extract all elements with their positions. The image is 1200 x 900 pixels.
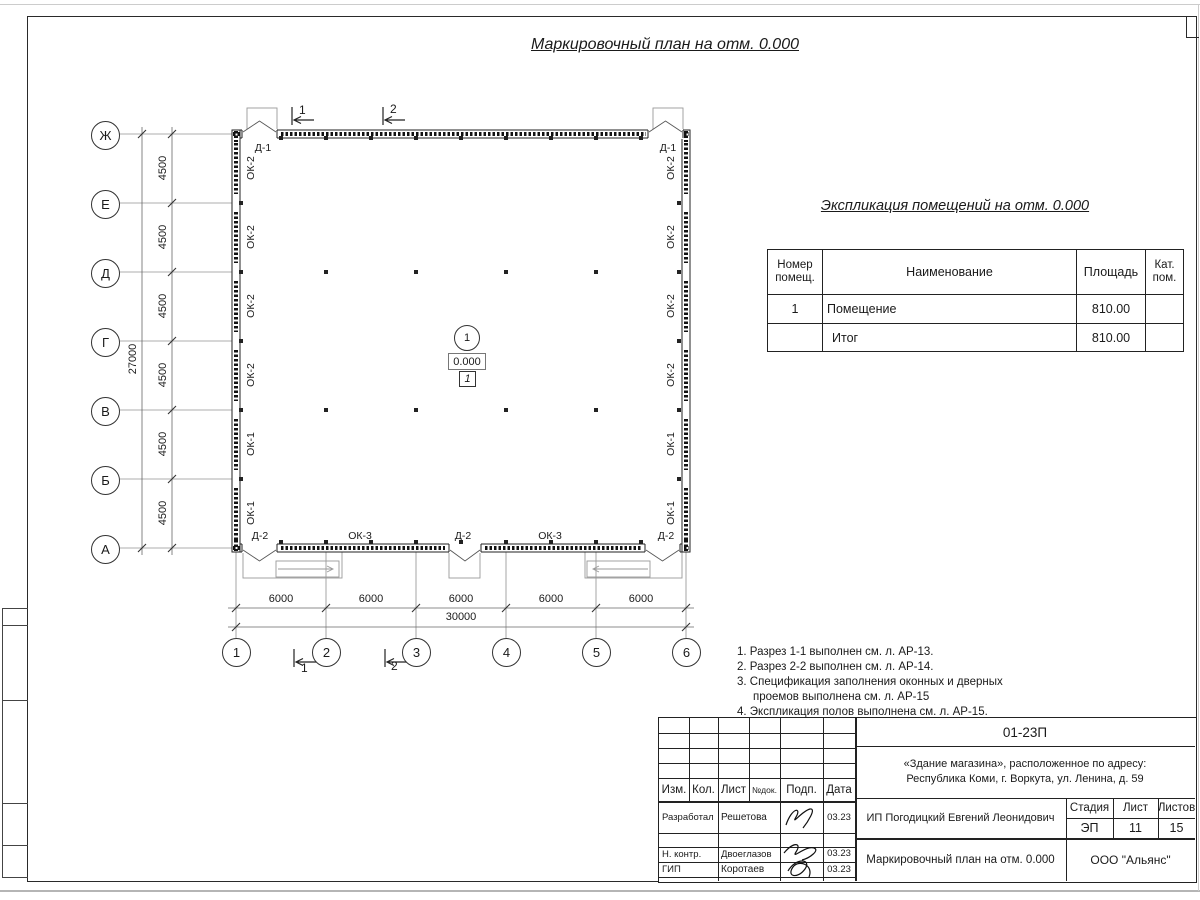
header-name: Наименование xyxy=(823,250,1077,295)
window-mark: ОК-3 xyxy=(338,530,382,542)
signature-stroke xyxy=(786,809,812,828)
header-area: Площадь xyxy=(1077,250,1146,295)
stamp-doc-number: 01-23П xyxy=(855,718,1195,746)
axis-bubble-col: 5 xyxy=(582,638,611,667)
axis-bubble-row: А xyxy=(91,535,120,564)
axis-bubble-col: 6 xyxy=(672,638,701,667)
note-item: 3. Спецификация заполнения оконных и две… xyxy=(737,675,1022,705)
stamp-line xyxy=(659,877,855,878)
stamp-stage-value: ЭП xyxy=(1066,818,1113,838)
axis-bubble-col: 3 xyxy=(402,638,431,667)
cell-room-name: Помещение xyxy=(823,295,1077,324)
dimension-label: 4500 xyxy=(157,141,169,195)
header-line: помещ. xyxy=(772,272,818,285)
window-mark: ОК-2 xyxy=(245,281,257,331)
axis-bubble-row: Г xyxy=(91,328,120,357)
dimension-label: 6000 xyxy=(434,593,488,605)
explication-row: Итог 810.00 xyxy=(768,324,1184,352)
window-mark: ОК-2 xyxy=(245,350,257,400)
cell-room-number xyxy=(768,324,823,352)
stamp-role: Н. контр. xyxy=(662,847,717,862)
stamp-doc-title: Маркировочный план на отм. 0.000 xyxy=(855,839,1066,881)
stamp-col-list: Лист xyxy=(718,778,749,801)
floor-type-mark: 1 xyxy=(459,371,476,387)
cell-room-name: Итог xyxy=(823,324,1077,352)
header-line: Номер xyxy=(772,259,818,272)
stamp-col-kol: Кол. xyxy=(689,778,718,801)
explication-header-row: Номер помещ. Наименование Площадь Кат. п… xyxy=(768,250,1184,295)
window-mark: ОК-1 xyxy=(665,419,677,469)
explication-row: 1 Помещение 810.00 xyxy=(768,295,1184,324)
dimension-total-label: 27000 xyxy=(127,319,139,399)
dimension-label: 6000 xyxy=(344,593,398,605)
window-mark: ОК-3 xyxy=(528,530,572,542)
drawing-sheet: Маркировочный план на отм. 0.000 xyxy=(0,0,1200,900)
stamp-line xyxy=(659,733,855,734)
stamp-sheet-value: 11 xyxy=(1113,818,1158,838)
stamp-sheets-value: 15 xyxy=(1158,818,1195,838)
section-number: 1 xyxy=(301,661,308,675)
dimension-label: 4500 xyxy=(157,279,169,333)
axis-bubble-row: Б xyxy=(91,466,120,495)
dimension-ticks xyxy=(138,130,690,631)
stamp-sheets-label: Листов xyxy=(1158,798,1195,818)
axis-bubble-col: 1 xyxy=(222,638,251,667)
signatures xyxy=(780,801,823,881)
room-number-bubble: 1 xyxy=(454,325,480,351)
stamp-client: ИП Погодицкий Евгений Леонидович xyxy=(855,798,1066,838)
signature-stroke xyxy=(788,861,810,877)
window-mark: ОК-2 xyxy=(665,281,677,331)
dimension-label: 4500 xyxy=(157,210,169,264)
notes-list: 1. Разрез 1-1 выполнен см. л. АР-13. 2. … xyxy=(737,645,1022,720)
axis-bubble-row: Е xyxy=(91,190,120,219)
stamp-sheet-label: Лист xyxy=(1113,798,1158,818)
dimension-label: 6000 xyxy=(524,593,578,605)
door-mark: Д-2 xyxy=(446,530,480,542)
note-item: 1. Разрез 1-1 выполнен см. л. АР-13. xyxy=(737,645,1022,660)
header-line: пом. xyxy=(1150,272,1179,285)
window-mark: ОК-2 xyxy=(245,212,257,262)
header-category: Кат. пом. xyxy=(1146,250,1184,295)
stamp-company: ООО "Альянс" xyxy=(1066,839,1195,881)
title-block: Изм. Кол. Лист №док. Подп. Дата Разработ… xyxy=(658,717,1197,883)
dimension-label: 6000 xyxy=(614,593,668,605)
signature-stroke xyxy=(784,845,816,860)
stamp-line xyxy=(659,763,855,764)
stamp-col-ndok: №док. xyxy=(749,778,780,801)
stamp-col-data: Дата xyxy=(823,778,855,801)
stamp-role-name: Решетова xyxy=(721,801,779,833)
axis-bubble-row: Ж xyxy=(91,121,120,150)
dimension-label: 4500 xyxy=(157,417,169,471)
cell-room-number: 1 xyxy=(768,295,823,324)
axis-bubble-row: Д xyxy=(91,259,120,288)
section-number: 2 xyxy=(391,659,398,673)
cell-room-area: 810.00 xyxy=(1077,324,1146,352)
stamp-role-name: Коротаев xyxy=(721,862,779,877)
dimension-label: 4500 xyxy=(157,486,169,540)
stamp-role-date: 03.23 xyxy=(823,862,855,877)
stamp-col-izm: Изм. xyxy=(659,778,689,801)
dimension-total-label: 30000 xyxy=(421,611,501,623)
section-number: 1 xyxy=(299,103,306,117)
axis-bubble-col: 4 xyxy=(492,638,521,667)
axis-bubble-col: 2 xyxy=(312,638,341,667)
header-line: Кат. xyxy=(1150,259,1179,272)
stamp-stage-label: Стадия xyxy=(1066,798,1113,818)
door-mark: Д-1 xyxy=(246,142,280,154)
section-cut-marks xyxy=(292,107,407,667)
door-mark: Д-2 xyxy=(649,530,683,542)
stamp-col-podp: Подп. xyxy=(780,778,823,801)
note-item: 2. Разрез 2-2 выполнен см. л. АР-14. xyxy=(737,660,1022,675)
dimension-label: 6000 xyxy=(254,593,308,605)
stamp-line xyxy=(855,746,1195,747)
floor-type-value: 1 xyxy=(464,373,470,385)
stamp-role-date: 03.23 xyxy=(823,846,855,861)
door-mark: Д-1 xyxy=(651,142,685,154)
axis-bubble-row: В xyxy=(91,397,120,426)
stamp-role: ГИП xyxy=(662,862,717,877)
section-number: 2 xyxy=(390,102,397,116)
stamp-object: «Здание магазина», расположенное по адре… xyxy=(855,748,1195,796)
header-room-number: Номер помещ. xyxy=(768,250,823,295)
stamp-role: Разработал xyxy=(662,801,717,833)
window-mark: ОК-2 xyxy=(665,212,677,262)
cell-room-category xyxy=(1146,295,1184,324)
stamp-line xyxy=(659,748,855,749)
cell-room-category xyxy=(1146,324,1184,352)
door-mark: Д-2 xyxy=(243,530,277,542)
explication-title: Экспликация помещений на отм. 0.000 xyxy=(790,198,1120,214)
explication-table: Номер помещ. Наименование Площадь Кат. п… xyxy=(767,249,1184,352)
stamp-object-line1: «Здание магазина», расположенное по адре… xyxy=(904,757,1147,772)
stamp-line xyxy=(659,833,855,834)
dimension-label: 4500 xyxy=(157,348,169,402)
window-mark: ОК-1 xyxy=(245,419,257,469)
cell-room-area: 810.00 xyxy=(1077,295,1146,324)
level-mark: 0.000 xyxy=(448,353,486,370)
stamp-object-line2: Республика Коми, г. Воркута, ул. Ленина,… xyxy=(906,772,1143,787)
level-mark-value: 0.000 xyxy=(453,356,481,368)
axis-grid-lines xyxy=(119,134,686,638)
stamp-role-date: 03.23 xyxy=(823,801,855,833)
window-mark: ОК-2 xyxy=(665,350,677,400)
stamp-role-name: Двоеглазов xyxy=(721,847,779,862)
